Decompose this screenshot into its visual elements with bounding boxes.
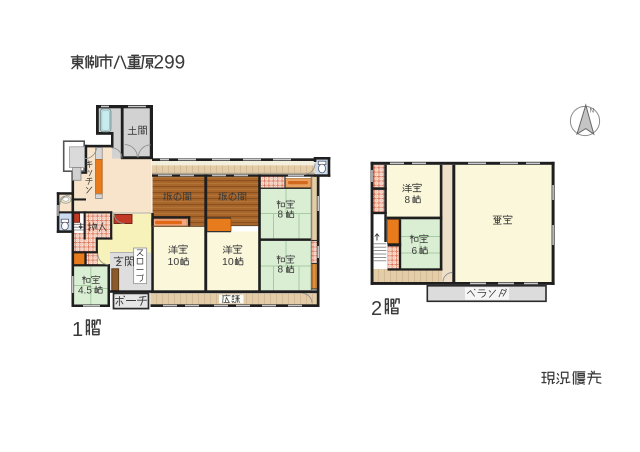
svg-text:299: 299 xyxy=(154,53,186,74)
svg-text:10: 10 xyxy=(168,256,180,268)
svg-text:N: N xyxy=(590,108,595,115)
svg-text:8: 8 xyxy=(278,265,284,276)
svg-text:10: 10 xyxy=(222,256,234,268)
svg-text:6: 6 xyxy=(412,246,418,257)
svg-text:4.5: 4.5 xyxy=(78,286,92,297)
svg-text:1: 1 xyxy=(72,319,83,341)
svg-text:8: 8 xyxy=(405,195,411,206)
svg-text:2: 2 xyxy=(371,298,382,320)
svg-text:8: 8 xyxy=(278,210,284,221)
